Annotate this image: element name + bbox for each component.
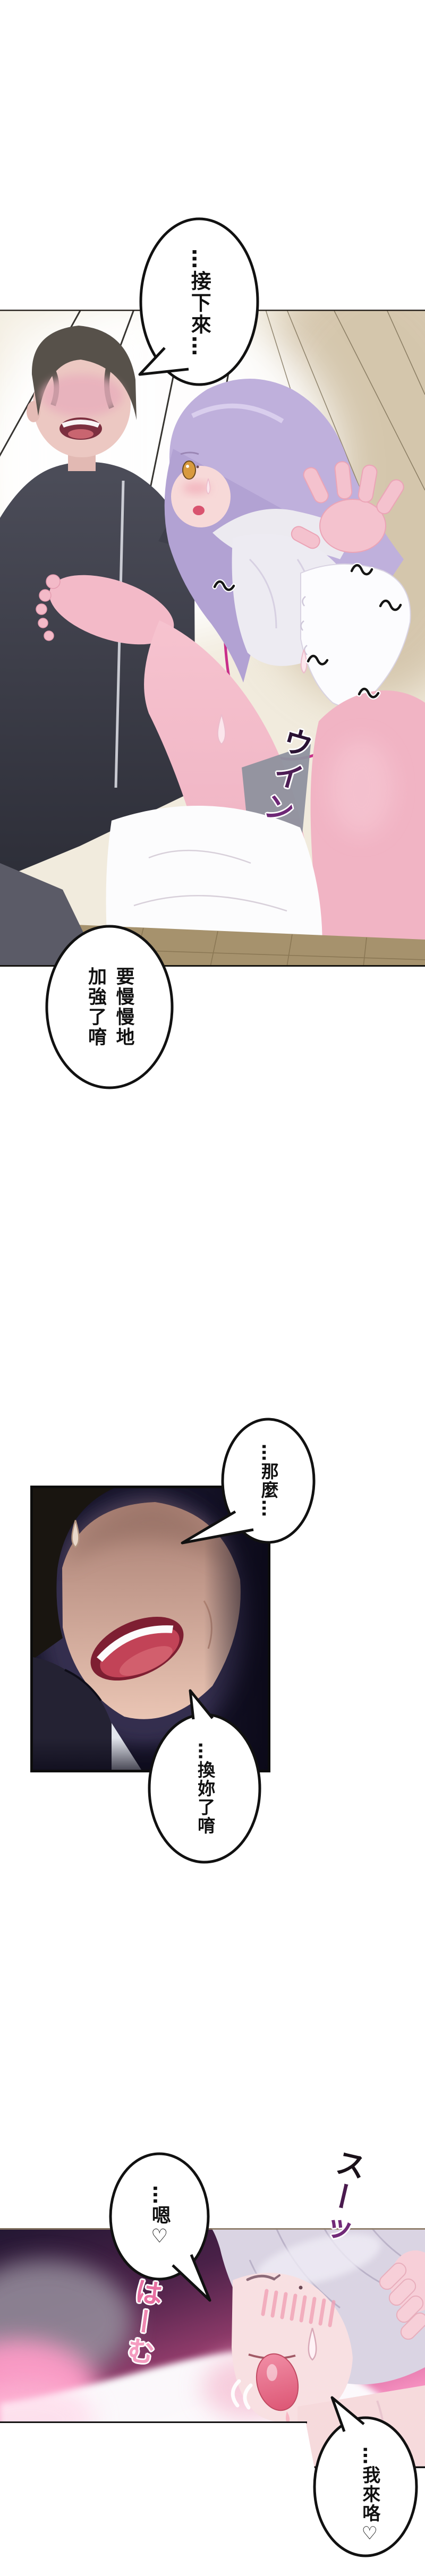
bubble-text: …嗯♡ [109,2153,210,2280]
beauty-mark [299,2286,303,2290]
speech-bubble-your-turn: …換妳了唷 [148,1713,262,1864]
woman-face [171,466,231,527]
sfx-char: む [120,2334,156,2368]
manga-page: ウイン …接下來… 要慢慢地 加強了唷 …那麼… [0,0,425,2576]
woman-eye [183,461,195,479]
sfx-char: は [128,2276,164,2310]
speech-bubble-well-then: …那麼… [220,1417,316,1545]
bubble-text: …我來咯♡ [313,2416,425,2576]
bubble-text: 要慢慢地 加強了唷 [44,923,175,1091]
sfx-char: ー [124,2305,159,2339]
panel-top-border [0,2228,425,2230]
speech-bubble-here-i-come: …我來咯♡ [313,2416,425,2576]
bubble-text: …那麼… [220,1417,316,1545]
woman-mouth [193,506,205,515]
bubble-text: …換妳了唷 [148,1713,262,1864]
speech-bubble-next: …接下來… [135,215,263,390]
panel-bottom-border-left [0,2421,307,2424]
panel-bedroom-scene [0,310,425,967]
face-blur [40,374,123,417]
speech-bubble-mm: …嗯♡ [109,2153,210,2280]
open-palm [320,499,386,552]
speech-bubble-slowly-intensify: 要慢慢地 加強了唷 [44,923,175,1091]
bubble-text: …接下來… [135,215,263,390]
panel-bedroom-art [0,310,425,967]
